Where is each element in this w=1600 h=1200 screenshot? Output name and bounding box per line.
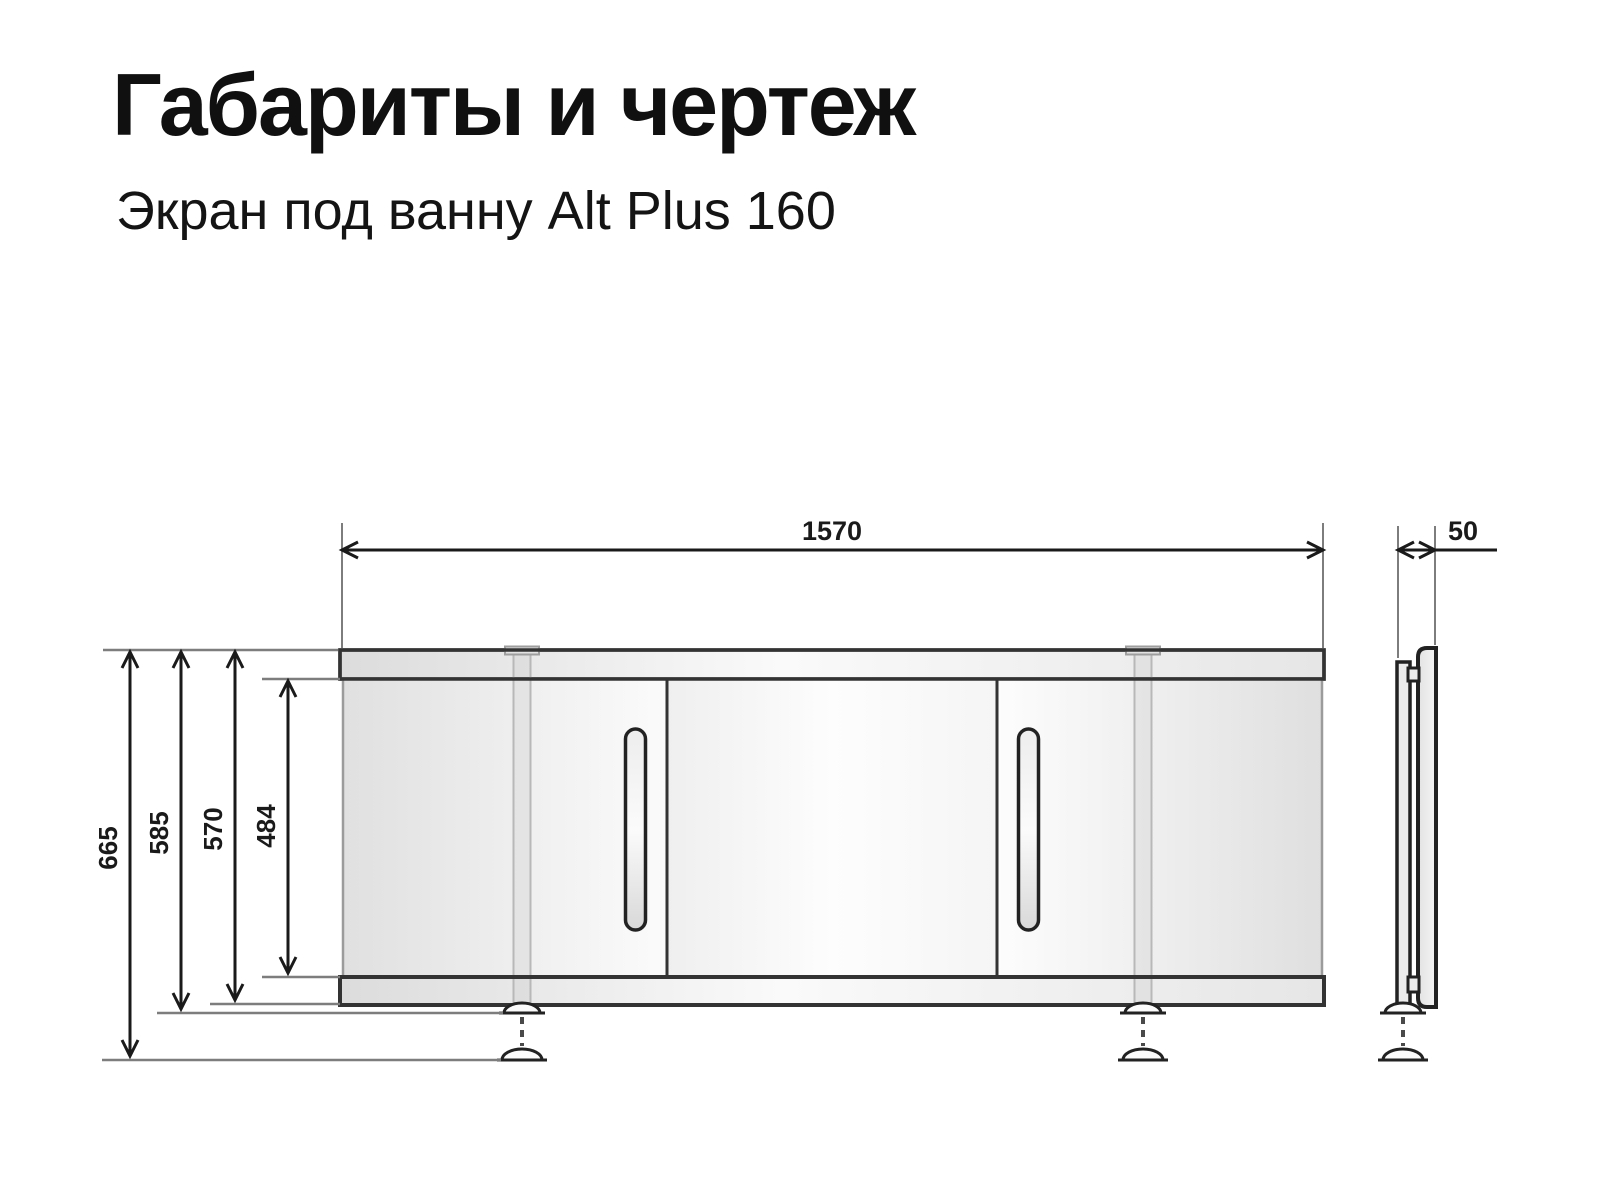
dim-height-feet — [173, 652, 189, 1009]
handle-right — [1019, 729, 1039, 930]
side-view — [1378, 648, 1436, 1060]
dim-height-total-label: 665 — [93, 826, 123, 869]
door-panel-right — [997, 679, 1323, 977]
foot-right — [1118, 1003, 1168, 1060]
leg-left-stem — [514, 653, 531, 1005]
leg-right-stem — [1135, 653, 1152, 1005]
product-dimensions-page: Габариты и чертеж Экран под ванну Alt Pl… — [0, 0, 1600, 1200]
foot-left-extended-dome — [502, 1049, 542, 1060]
front-view — [340, 647, 1324, 1061]
handle-left — [626, 729, 646, 930]
side-front-slab — [1397, 662, 1410, 1005]
dim-height-panel-label: 570 — [198, 807, 228, 850]
dim-depth-label: 50 — [1448, 516, 1478, 546]
foot-left — [497, 1003, 547, 1060]
side-back-slab — [1418, 648, 1436, 1007]
door-panel-middle — [667, 679, 997, 977]
side-bottom-bracket — [1408, 977, 1419, 992]
dim-height-total — [122, 652, 138, 1056]
technical-drawing: 1570 50 665 585 — [0, 0, 1600, 1200]
dim-width-label: 1570 — [802, 516, 862, 546]
side-top-bracket — [1408, 668, 1419, 681]
foot-side-extended-dome — [1383, 1049, 1423, 1060]
top-rail — [340, 650, 1324, 679]
dim-height-feet-label: 585 — [144, 811, 174, 854]
dim-height-opening — [280, 681, 296, 973]
door-panel-left — [342, 679, 667, 977]
foot-right-extended-dome — [1123, 1049, 1163, 1060]
extension-lines — [342, 523, 1435, 658]
dim-height-opening-label: 484 — [251, 804, 281, 848]
dim-height-panel — [227, 652, 243, 1000]
foot-side — [1378, 1003, 1428, 1060]
bottom-rail — [340, 977, 1324, 1005]
